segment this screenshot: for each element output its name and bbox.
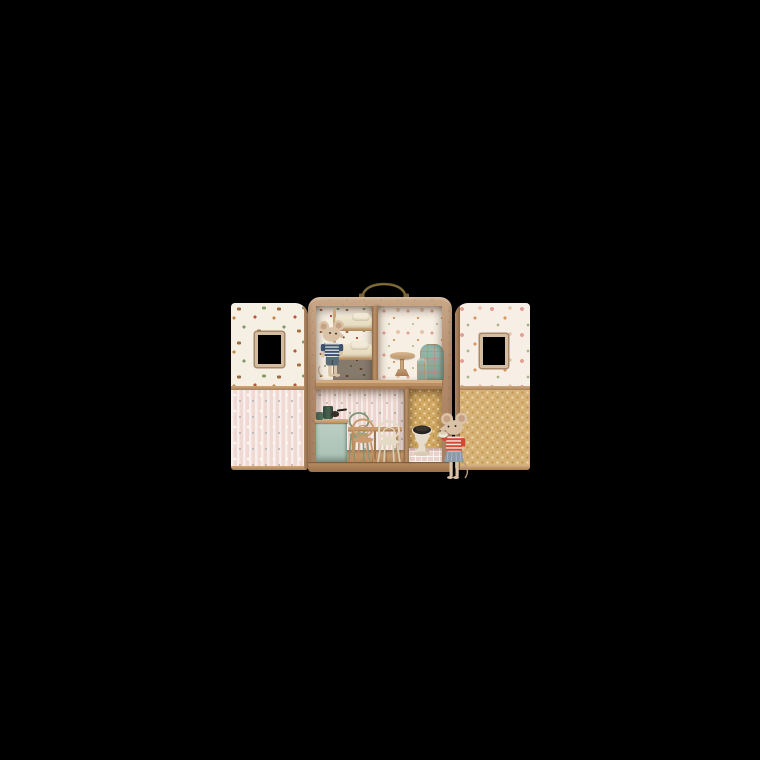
toilet-base (414, 452, 430, 456)
cream-bowl (438, 431, 448, 437)
pan (331, 411, 339, 417)
mouse-boy (316, 320, 348, 380)
toilet (411, 422, 433, 456)
right-door-window (480, 334, 508, 368)
mouse-girl-paw (461, 446, 464, 449)
mouse-girl-nose (439, 430, 441, 432)
photo-stage (0, 0, 760, 760)
mouse-house-suitcase (0, 0, 760, 760)
mouse-boy-nose (343, 336, 345, 338)
bunk-bed-top-pillow (352, 313, 370, 321)
pedestal-table-stem (400, 357, 404, 371)
mouse-boy-tail (319, 366, 323, 376)
green-mug (316, 412, 323, 420)
pedestal-table-top (390, 352, 415, 359)
mouse-girl-tail (462, 461, 467, 478)
armchair-arm (417, 358, 427, 380)
left-door-bottom-rail (231, 466, 308, 470)
mouse-girl-striped-top (442, 437, 466, 452)
middle-floor-slab (316, 380, 442, 389)
mouse-boy-legs (328, 364, 340, 377)
left-door (231, 303, 308, 470)
bentwood-chair-wood (352, 420, 374, 463)
mouse-girl-legs (447, 461, 459, 479)
left-door-lower-wallpaper (231, 390, 308, 466)
kitchen-cupboard (316, 421, 347, 462)
left-door-window (255, 332, 284, 367)
mouse-girl (437, 411, 473, 483)
kitchen-furniture (344, 404, 408, 464)
bunk-bed-bottom-pillow (350, 341, 369, 350)
